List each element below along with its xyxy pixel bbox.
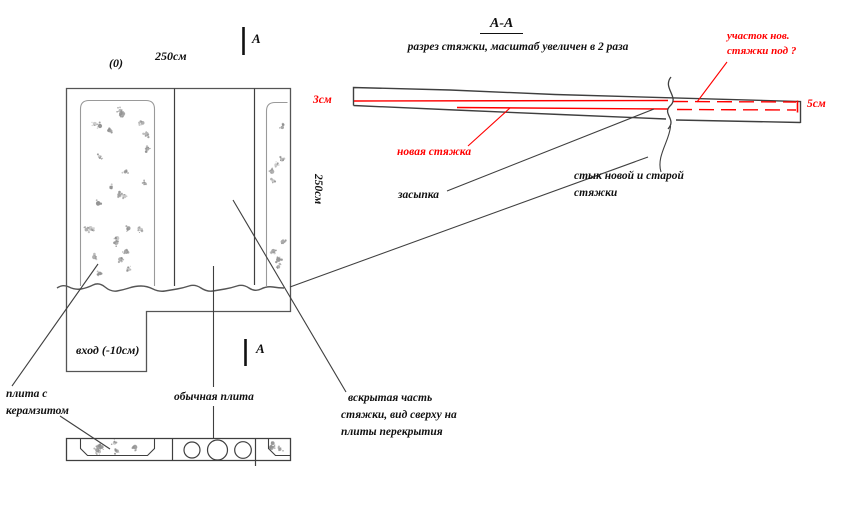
- leader-new-screed: [468, 108, 510, 146]
- new-screed-line-upper-dashed: [673, 102, 796, 103]
- wavy-break-line: [57, 284, 284, 291]
- label-entrance: вход (-10см): [76, 342, 139, 358]
- label-claydite-slab: плита с керамзитом: [6, 386, 69, 420]
- new-screed-line-upper: [354, 101, 668, 102]
- wedge-outline: [354, 88, 801, 124]
- section-mark-a-top: А: [252, 31, 261, 47]
- slab-trough-left: [81, 439, 155, 456]
- leader-claydite-down: [60, 416, 110, 449]
- leader-opened-screed: [233, 200, 346, 392]
- drawing-canvas: А-А разрез стяжки, масштаб увеличен в 2 …: [0, 0, 855, 505]
- label-new-screed-patch: участок нов. стяжки под ?: [727, 29, 796, 59]
- label-opened-screed: вскрытая часть стяжки, вид сверху на пли…: [341, 390, 457, 441]
- leader-claydite-up: [12, 264, 98, 386]
- label-backfill: засыпка: [398, 187, 439, 203]
- section-subtitle: разрез стяжки, масштаб увеличен в 2 раза: [383, 39, 653, 55]
- label-regular-slab: обычная плита: [174, 389, 254, 405]
- plan-outline: [67, 89, 291, 372]
- leader-patch: [697, 62, 727, 102]
- section-mark-a-bottom: А: [256, 341, 265, 357]
- break-curve: [668, 77, 674, 129]
- dim-3cm: 3см: [313, 92, 332, 108]
- dim-5cm: 5см: [807, 96, 826, 112]
- section-title: А-А: [480, 16, 523, 34]
- dim-250cm-top: 250см: [155, 48, 187, 64]
- hollow-core-circles: [184, 440, 251, 460]
- claydite-zone-outline: [81, 101, 155, 287]
- label-new-screed: новая стяжка: [397, 144, 471, 160]
- leader-joint-curve: [660, 126, 671, 172]
- new-screed-line-lower: [457, 108, 668, 110]
- dim-250cm-right: 250см: [310, 174, 326, 204]
- plan-elevation-mark: (0): [109, 55, 123, 71]
- label-joint: стык новой и старой стяжки: [574, 168, 684, 202]
- new-screed-line-lower-dashed: [677, 110, 796, 111]
